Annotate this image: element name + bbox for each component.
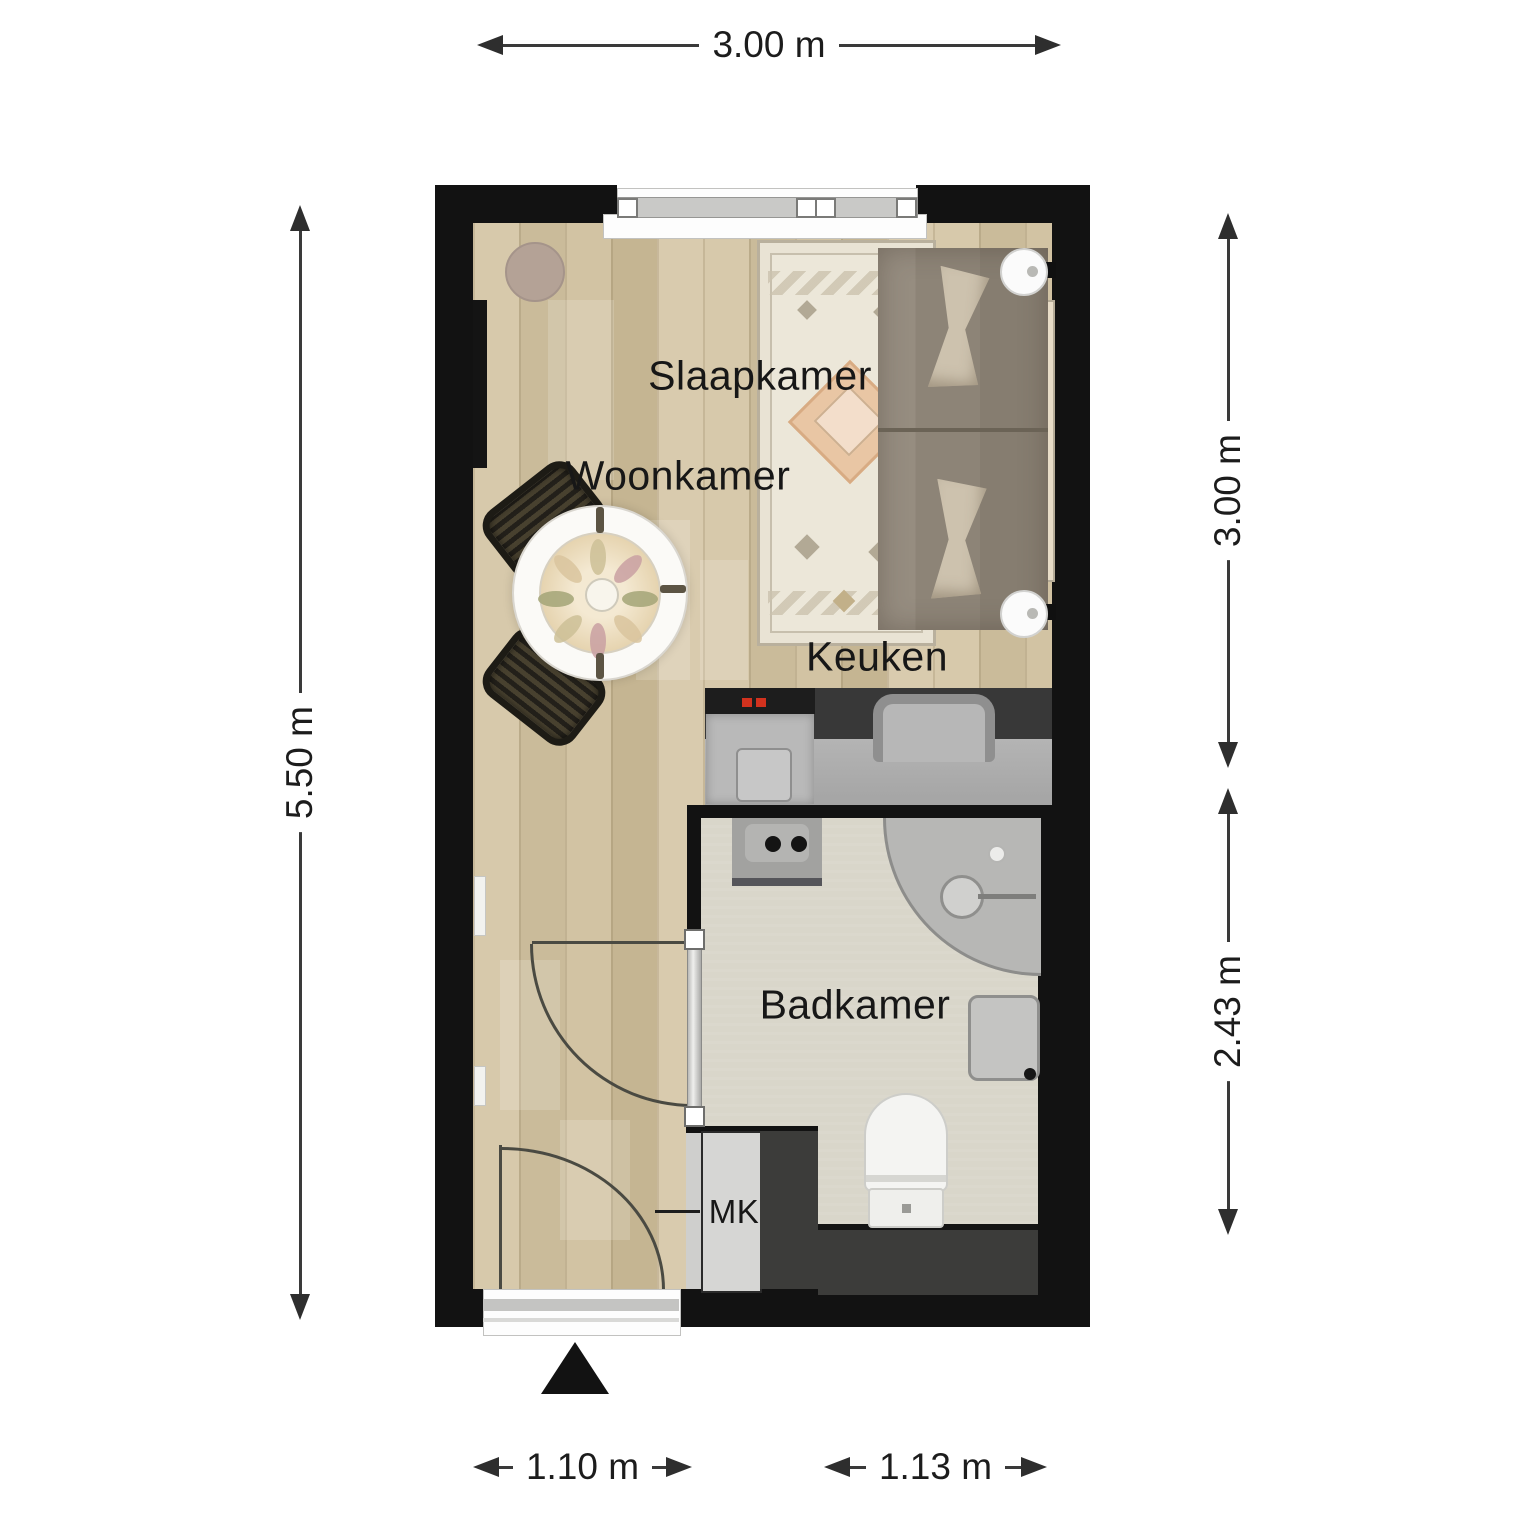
- dimension-bottom-left: 1.10 m: [473, 1447, 692, 1487]
- label-bathroom: Badkamer: [760, 982, 951, 1029]
- dimension-bottom-right: 1.13 m: [824, 1447, 1047, 1487]
- arrow-down-icon: [290, 1294, 310, 1320]
- side-table: [505, 242, 565, 302]
- window-mullion: [796, 198, 817, 218]
- arrow-up-icon: [1218, 788, 1238, 814]
- stove-knob-red: [756, 698, 766, 707]
- bathroom-top-wall: [687, 805, 1052, 818]
- arrow-up-icon: [1218, 213, 1238, 239]
- wall-right-upper: [1052, 185, 1090, 818]
- entrance-threshold: [483, 1289, 681, 1336]
- arrow-left-icon: [473, 1457, 499, 1477]
- nightstand-lamp: [1000, 590, 1048, 638]
- toilet-button: [902, 1204, 911, 1213]
- label-kitchen: Keuken: [806, 634, 948, 681]
- table-mark: [596, 507, 604, 533]
- dimension-line: [299, 231, 302, 693]
- shower-arm: [978, 894, 1036, 899]
- faucet-dot: [791, 836, 807, 852]
- label-bedroom: Slaapkamer: [648, 353, 872, 400]
- dimension-line: [503, 44, 699, 47]
- sink-drain-dot: [1024, 1068, 1036, 1080]
- counter-chair: [873, 694, 995, 762]
- arrow-down-icon: [1218, 742, 1238, 768]
- arrow-right-icon: [1021, 1457, 1047, 1477]
- mk-leader-line: [655, 1210, 700, 1213]
- wall-mounted-unit: [473, 300, 487, 468]
- dimension-top-width: 3.00 m: [477, 25, 1061, 65]
- threshold-stripe: [483, 1318, 679, 1322]
- dimension-line: [1227, 1081, 1230, 1209]
- window-mullion: [896, 198, 917, 218]
- lamp-dot: [1027, 608, 1038, 619]
- arrow-right-icon: [1035, 35, 1061, 55]
- washbasin-vanity: [732, 818, 822, 886]
- dimension-line: [850, 1466, 866, 1469]
- dining-table: [512, 505, 688, 681]
- flower-petal: [590, 539, 606, 575]
- toilet-tank: [868, 1188, 944, 1228]
- label-living-room: Woonkamer: [566, 453, 791, 500]
- nightstand-lamp: [1000, 248, 1048, 296]
- floor-plank-highlight: [700, 560, 748, 680]
- vanity-edge: [732, 878, 822, 886]
- dimension-right-upper-label: 3.00 m: [1207, 421, 1249, 560]
- dimension-line: [1227, 814, 1230, 942]
- dimension-line: [1005, 1466, 1021, 1469]
- threshold-stripe: [483, 1299, 679, 1311]
- dimension-line: [652, 1466, 666, 1469]
- dimension-line: [1227, 560, 1230, 742]
- dimension-top-label: 3.00 m: [699, 24, 838, 66]
- dimension-right-upper: 3.00 m: [1204, 213, 1252, 768]
- dimension-line: [299, 832, 302, 1294]
- dimension-line: [1227, 239, 1230, 421]
- toilet-bowl: [864, 1093, 948, 1192]
- entrance-arrow-icon: [541, 1342, 609, 1394]
- dimension-left-height: 5.50 m: [276, 205, 324, 1320]
- oven-door: [736, 748, 792, 802]
- floor-plan-canvas: 3.00 m 5.50 m 3.00 m 2.43 m 1.10 m 1.13 …: [0, 0, 1536, 1536]
- toilet-seat-line: [866, 1175, 946, 1182]
- shower-small-dot: [988, 845, 1006, 863]
- label-meter-closet: MK: [709, 1193, 760, 1231]
- faucet-dot: [765, 836, 781, 852]
- duct-block: [760, 1131, 818, 1289]
- bed-seam: [878, 428, 1048, 432]
- dimension-right-lower: 2.43 m: [1204, 788, 1252, 1235]
- bathroom-door-slab: [687, 947, 702, 1109]
- wall-right-lower: [1038, 805, 1090, 1327]
- dimension-left-label: 5.50 m: [279, 693, 321, 832]
- flower-petal: [538, 591, 574, 607]
- dimension-bottom-right-label: 1.13 m: [866, 1446, 1005, 1488]
- arrow-right-icon: [666, 1457, 692, 1477]
- window-mullion: [617, 198, 638, 218]
- dimension-right-lower-label: 2.43 m: [1207, 942, 1249, 1081]
- left-wall-radiator: [474, 1066, 486, 1106]
- lamp-dot: [1027, 266, 1038, 277]
- stove-knob-red: [742, 698, 752, 707]
- arrow-up-icon: [290, 205, 310, 231]
- left-wall-radiator: [474, 876, 486, 936]
- table-mark: [660, 585, 686, 593]
- arrow-down-icon: [1218, 1209, 1238, 1235]
- wall-bottom-left: [435, 1289, 485, 1327]
- bathroom-bottom-band: [818, 1224, 1038, 1295]
- arrow-left-icon: [824, 1457, 850, 1477]
- table-mark: [596, 653, 604, 679]
- dimension-line: [499, 1466, 513, 1469]
- dimension-line: [839, 44, 1035, 47]
- bathroom-left-wall: [687, 805, 701, 930]
- arrow-left-icon: [477, 35, 503, 55]
- window-mullion: [815, 198, 836, 218]
- table-center: [585, 578, 619, 612]
- flower-petal: [622, 591, 658, 607]
- wall-left: [435, 185, 473, 1327]
- door-jamb: [684, 1106, 705, 1127]
- dimension-bottom-left-label: 1.10 m: [513, 1446, 652, 1488]
- door-jamb: [684, 929, 705, 950]
- window-glass: [617, 197, 918, 218]
